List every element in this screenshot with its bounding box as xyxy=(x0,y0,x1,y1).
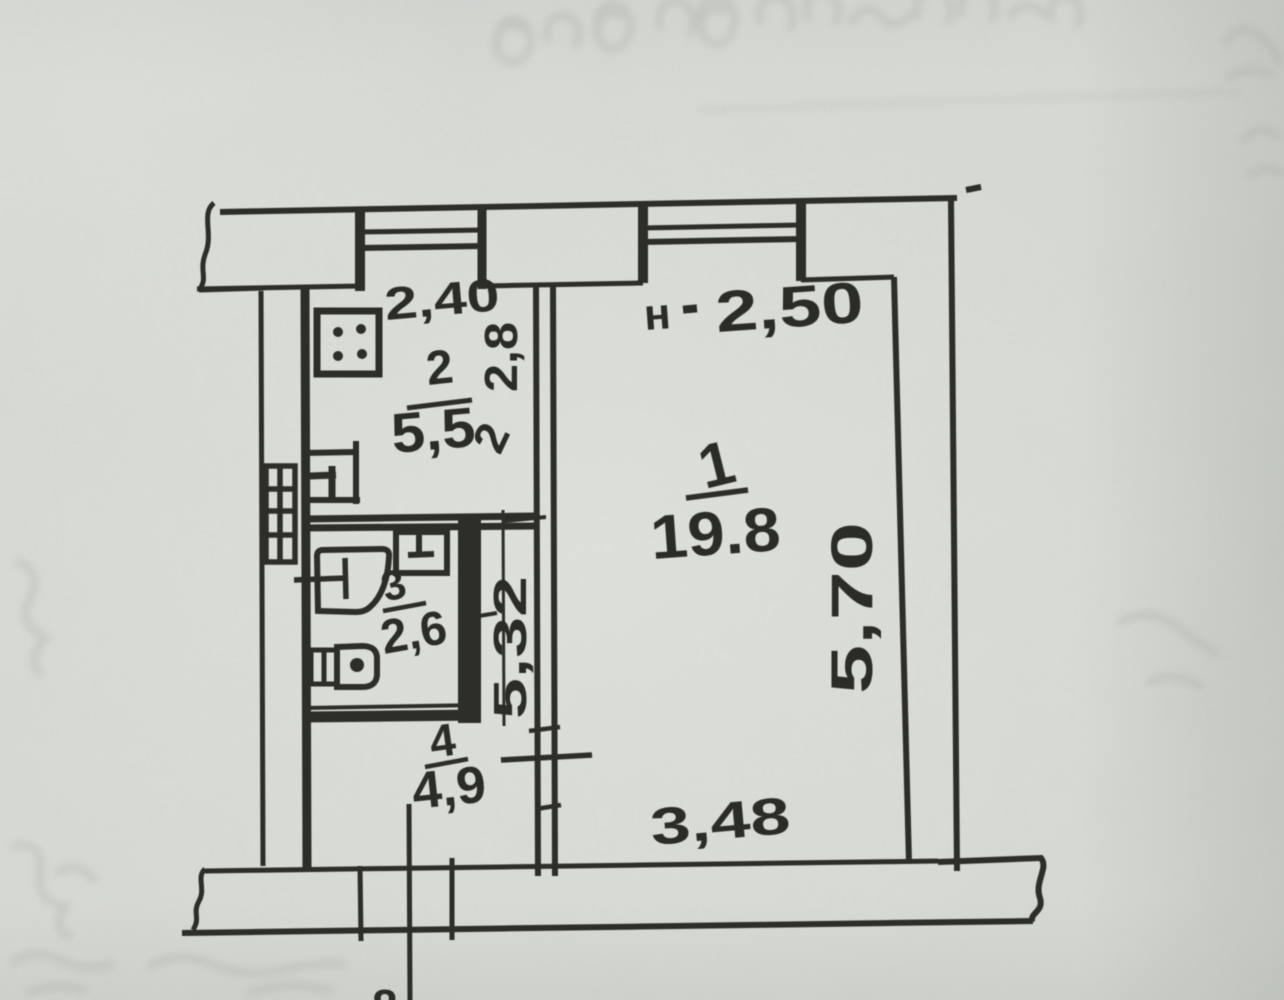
svg-text:2,8: 2,8 xyxy=(475,322,527,392)
svg-text:н: н xyxy=(642,289,672,340)
svg-text:2,40: 2,40 xyxy=(382,268,501,330)
svg-text:4,9: 4,9 xyxy=(409,756,489,821)
svg-text:19.8: 19.8 xyxy=(648,495,782,573)
svg-text:3,48: 3,48 xyxy=(648,787,793,857)
svg-text:2: 2 xyxy=(424,340,456,396)
svg-text:5,5: 5,5 xyxy=(389,395,478,465)
svg-text:8: 8 xyxy=(372,980,398,1000)
svg-text:5,70: 5,70 xyxy=(820,522,885,694)
svg-text:2,6: 2,6 xyxy=(377,601,451,665)
svg-text:2,50: 2,50 xyxy=(713,270,865,345)
svg-text:5,32: 5,32 xyxy=(484,576,536,719)
